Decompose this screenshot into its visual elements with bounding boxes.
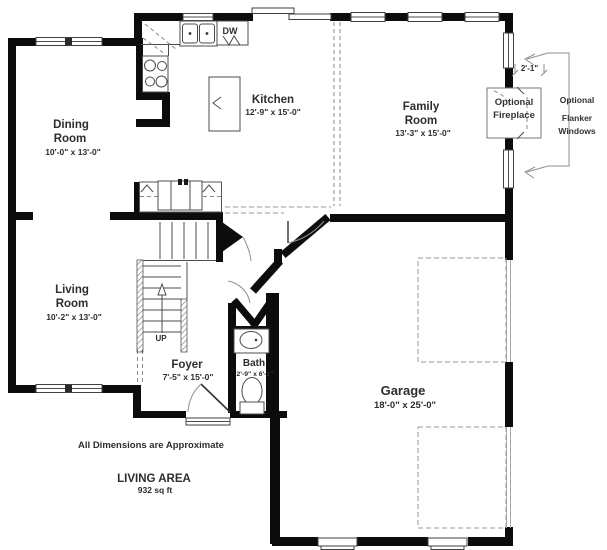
- toilet: [240, 378, 264, 415]
- svg-text:12'-9" x 15'-0": 12'-9" x 15'-0": [245, 107, 301, 117]
- up-label: UP: [155, 334, 167, 343]
- living-window: [36, 385, 102, 393]
- svg-text:Room: Room: [56, 298, 89, 310]
- dimension-2-1-label: 2'-1": [521, 64, 538, 73]
- svg-text:Dining: Dining: [53, 119, 89, 131]
- stair-landing-door: [222, 222, 251, 261]
- floor-plan-drawing: UP Optional Fireplace 2'-1": [0, 0, 607, 550]
- fireplace-label-line2: Fireplace: [493, 110, 535, 121]
- sliding-patio-door: [252, 8, 331, 20]
- kitchen-sink-window: [183, 14, 213, 21]
- kitchen-island: [209, 77, 240, 131]
- stair-stringer: [181, 299, 187, 352]
- dimension-2-1: 2'-1": [512, 64, 547, 76]
- bath-sink: [233, 328, 269, 354]
- svg-text:10'-2" x 13'-0": 10'-2" x 13'-0": [46, 312, 102, 322]
- svg-text:10'-0" x 13'-0": 10'-0" x 13'-0": [45, 147, 101, 157]
- kitchen-sink: [180, 21, 217, 46]
- dimensions-note: All Dimensions are Approximate: [78, 440, 224, 451]
- svg-text:7'-5" x 15'-0": 7'-5" x 15'-0": [163, 372, 214, 382]
- svg-text:Room: Room: [405, 115, 438, 127]
- kitchen-fixtures: [141, 21, 248, 131]
- up-arrow: [158, 284, 166, 333]
- svg-text:Garage: Garage: [381, 383, 426, 398]
- optional-fireplace: Optional Fireplace: [487, 87, 541, 139]
- svg-text:Living: Living: [55, 284, 89, 296]
- dashed-lines: [138, 22, 507, 528]
- living-area-title: LIVING AREA: [117, 473, 191, 485]
- floor-plan-page: UP Optional Fireplace 2'-1": [0, 0, 607, 550]
- dining-room-label: Dining Room 10'-0" x 13'-0": [45, 119, 101, 157]
- svg-text:Bath: Bath: [243, 358, 265, 369]
- flanker-label-line1: Optional: [560, 95, 594, 105]
- stove: [143, 56, 169, 92]
- dining-window: [36, 38, 102, 46]
- living-area-value: 932 sq ft: [138, 485, 173, 495]
- walls: [8, 13, 513, 546]
- stair-stringer: [137, 260, 143, 352]
- family-room-windows: [351, 13, 499, 22]
- family-room-label: Family Room 13'-3" x 15'-0": [395, 101, 451, 138]
- svg-text:Foyer: Foyer: [171, 359, 203, 371]
- front-door: [186, 384, 230, 425]
- svg-text:2'-9" x 6'-1": 2'-9" x 6'-1": [237, 371, 274, 378]
- footer: All Dimensions are Approximate LIVING AR…: [78, 440, 224, 495]
- svg-text:Room: Room: [54, 133, 87, 145]
- svg-text:Kitchen: Kitchen: [252, 94, 294, 106]
- fireplace-label-line1: Optional: [495, 97, 534, 108]
- svg-text:Family: Family: [403, 101, 440, 113]
- kitchen-label: Kitchen 12'-9" x 15'-0": [245, 94, 301, 117]
- dishwasher-label: DW: [223, 26, 238, 36]
- living-room-label: Living Room 10'-2" x 13'-0": [46, 284, 102, 322]
- flanker-label-line2: Flanker: [562, 113, 593, 123]
- foyer-label: Foyer 7'-5" x 15'-0": [163, 359, 214, 382]
- garage-label: Garage 18'-0" x 25'-0": [374, 383, 436, 411]
- svg-text:18'-0" x 25'-0": 18'-0" x 25'-0": [374, 400, 436, 411]
- bath-door: [228, 281, 250, 303]
- stairs: UP: [137, 222, 216, 352]
- svg-text:13'-3" x 15'-0": 13'-3" x 15'-0": [395, 128, 451, 138]
- pantry-closet: [140, 179, 222, 212]
- flanker-label-line3: Windows: [558, 126, 595, 136]
- refrigerator: [158, 181, 202, 210]
